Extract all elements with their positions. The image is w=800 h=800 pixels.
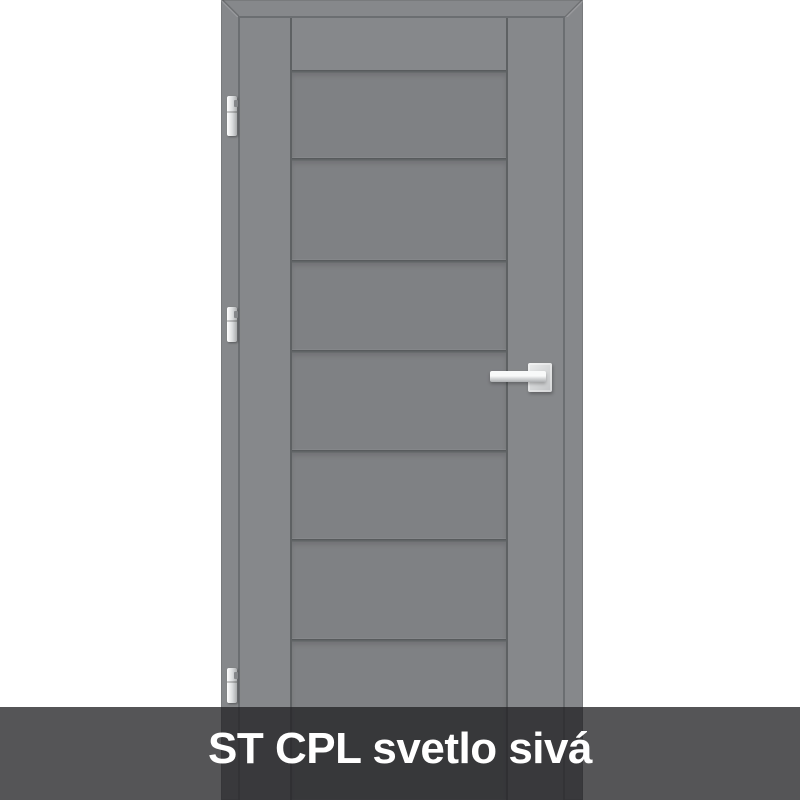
door-hinge-top xyxy=(227,96,237,136)
product-image: ST CPL svetlo sivá xyxy=(0,0,800,800)
caption-banner: ST CPL svetlo sivá xyxy=(0,707,800,800)
door-panel xyxy=(292,263,506,350)
miter-joint-right xyxy=(565,0,583,17)
door-panel xyxy=(292,453,506,539)
door-panel xyxy=(292,161,506,260)
door-casing xyxy=(221,0,583,800)
door-center-column xyxy=(290,18,508,800)
door-handle-lever xyxy=(490,371,546,382)
door-leaf xyxy=(238,16,565,800)
door-hinge-bottom xyxy=(227,668,237,703)
door-panel xyxy=(292,73,506,158)
caption-text: ST CPL svetlo sivá xyxy=(208,724,592,774)
door-top-rail xyxy=(292,18,506,70)
miter-joint-left xyxy=(221,0,239,17)
door-panel xyxy=(292,353,506,450)
door-panel xyxy=(292,542,506,639)
door-hinge-middle xyxy=(227,307,237,342)
